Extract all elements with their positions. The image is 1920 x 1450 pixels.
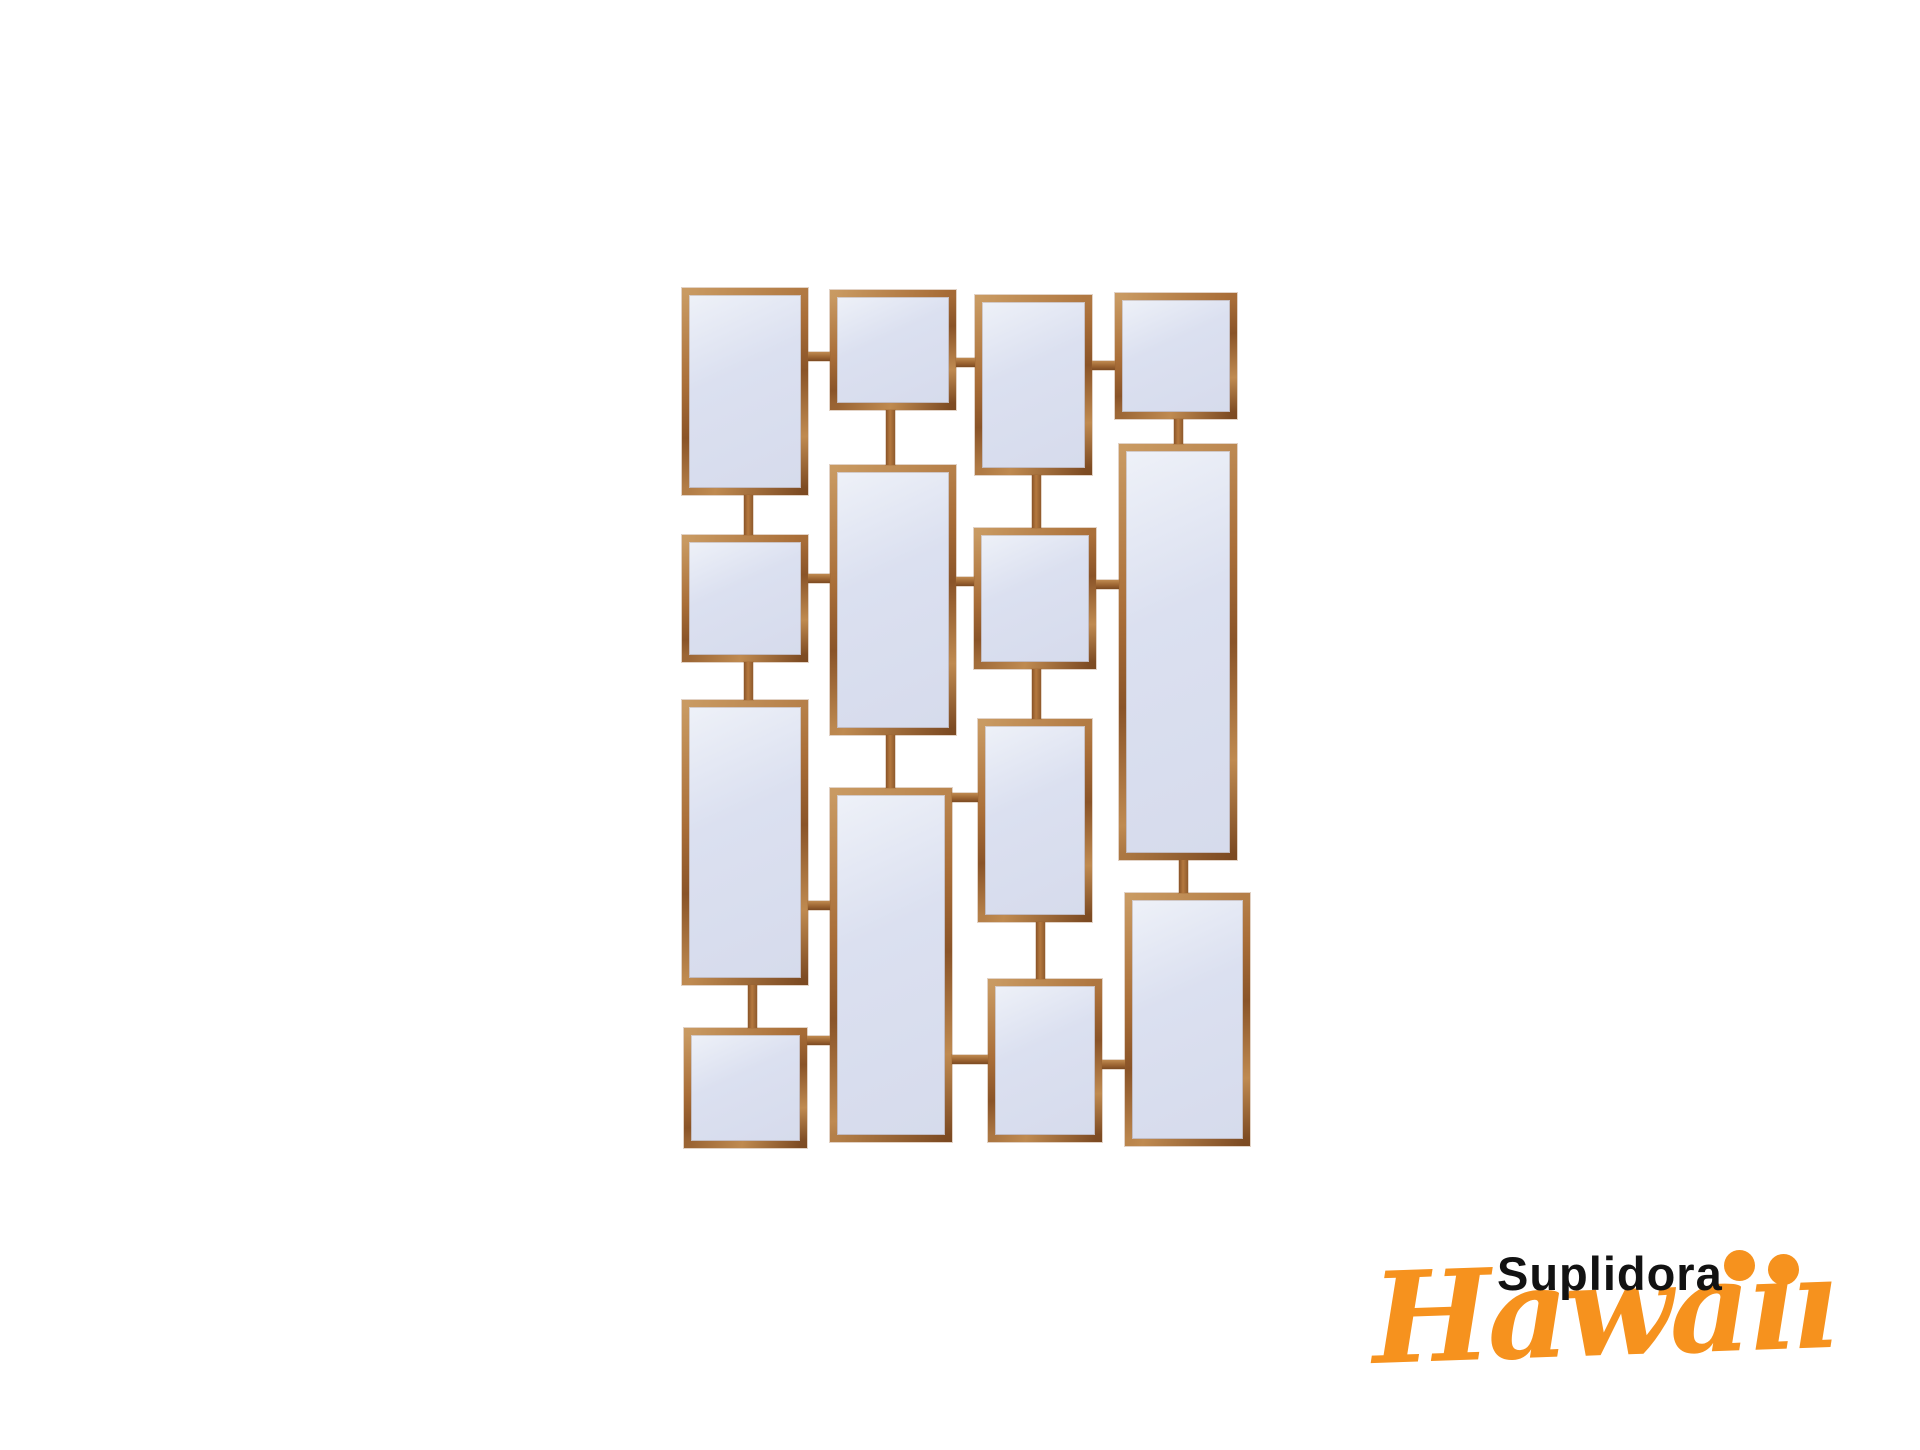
frame-connector xyxy=(886,410,895,465)
mirror-panel-col3-row1 xyxy=(975,295,1092,475)
frame-connector xyxy=(1092,361,1115,370)
frame-connector xyxy=(886,735,895,788)
brand-name-text: Suplidora xyxy=(1497,1246,1723,1301)
product-photo: Hawaıı Suplidora xyxy=(0,0,1920,1450)
mirror-panel-col4-row3 xyxy=(1125,893,1250,1146)
frame-connector xyxy=(808,352,830,361)
mirror-composition xyxy=(0,0,1920,1450)
frame-connector xyxy=(1179,860,1188,893)
mirror-panel-col2-row2 xyxy=(830,465,956,735)
mirror-panel-col2-row3 xyxy=(830,788,952,1142)
frame-connector xyxy=(956,577,974,586)
frame-connector xyxy=(1102,1060,1125,1069)
mirror-panel-col1-row4 xyxy=(684,1028,807,1148)
frame-connector xyxy=(952,1055,988,1064)
frame-connector xyxy=(748,985,757,1028)
mirror-panel-col3-row3 xyxy=(978,719,1092,922)
frame-connector xyxy=(952,793,978,802)
i-dot xyxy=(1724,1250,1755,1281)
frame-connector xyxy=(807,1036,830,1045)
brand-watermark: Hawaıı Suplidora xyxy=(1372,1240,1862,1390)
mirror-panel-col2-row1 xyxy=(830,290,956,410)
frame-connector xyxy=(808,574,830,583)
frame-connector xyxy=(744,495,753,535)
mirror-panel-col4-row1 xyxy=(1115,293,1237,419)
frame-connector xyxy=(744,662,753,700)
frame-connector xyxy=(1174,419,1183,444)
i-dot xyxy=(1768,1254,1799,1285)
frame-connector xyxy=(1032,475,1041,528)
mirror-panel-col1-row2 xyxy=(682,535,808,662)
mirror-panel-col3-row4 xyxy=(988,979,1102,1142)
frame-connector xyxy=(1036,922,1045,979)
mirror-panel-col1-row1 xyxy=(682,288,808,495)
mirror-panel-col3-row2 xyxy=(974,528,1096,669)
frame-connector xyxy=(1032,669,1041,719)
frame-connector xyxy=(1096,580,1119,589)
frame-connector xyxy=(808,901,830,910)
mirror-panel-col1-row3 xyxy=(682,700,808,985)
frame-connector xyxy=(956,358,975,367)
mirror-panel-col4-row2 xyxy=(1119,444,1237,860)
